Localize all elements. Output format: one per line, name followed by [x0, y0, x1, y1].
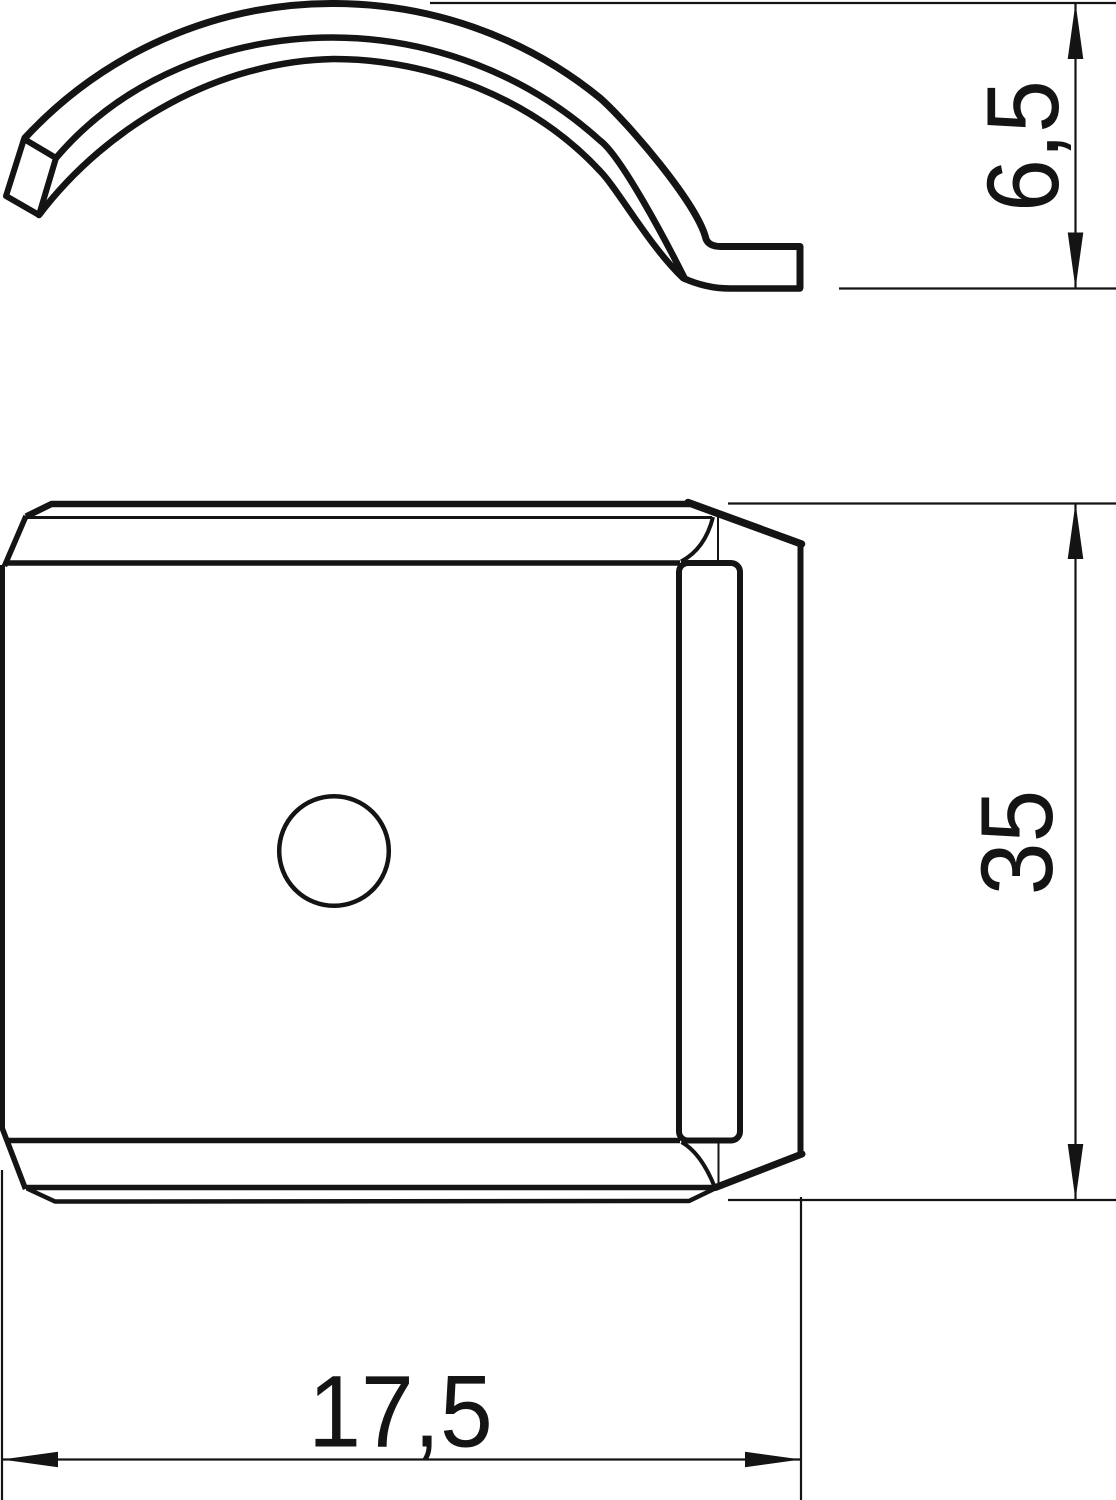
svg-text:35: 35: [960, 790, 1074, 896]
svg-text:6,5: 6,5: [966, 80, 1080, 212]
svg-text:17,5: 17,5: [308, 1354, 493, 1468]
